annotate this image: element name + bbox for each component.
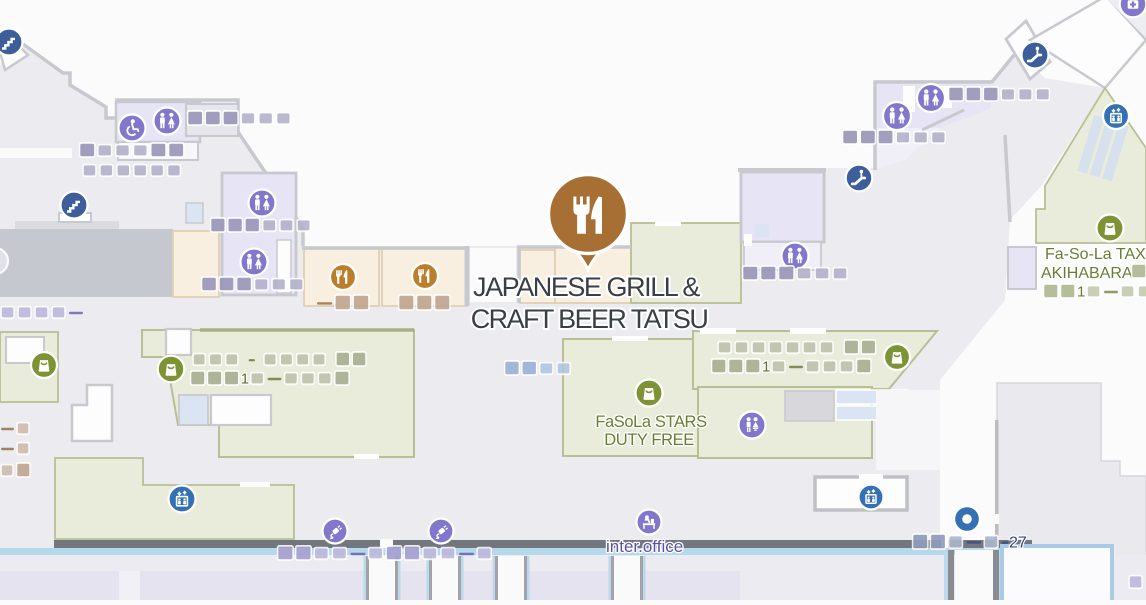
svg-text:DUTY FREE: DUTY FREE xyxy=(604,431,694,449)
svg-text:AKIHABARA: AKIHABARA xyxy=(1041,265,1133,282)
svg-text:inter.office: inter.office xyxy=(606,537,683,556)
svg-text:1: 1 xyxy=(1077,284,1085,301)
svg-text:CRAFT BEER TATSU: CRAFT BEER TATSU xyxy=(471,304,708,334)
svg-text:JAPANESE GRILL &: JAPANESE GRILL & xyxy=(473,272,700,302)
svg-text:27: 27 xyxy=(1009,535,1027,552)
svg-text:FaSoLa STARS: FaSoLa STARS xyxy=(595,413,707,431)
svg-text:Fa-So-La TAX: Fa-So-La TAX xyxy=(1045,246,1146,263)
svg-text:1: 1 xyxy=(762,359,770,376)
svg-text:1: 1 xyxy=(241,371,249,388)
